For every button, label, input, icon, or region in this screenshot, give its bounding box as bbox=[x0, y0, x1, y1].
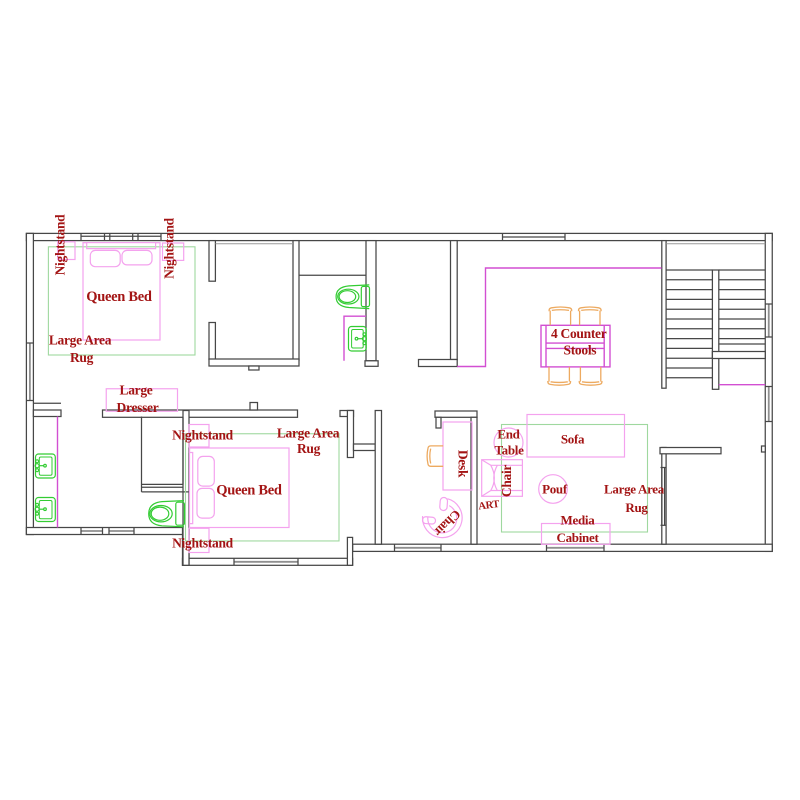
svg-text:Chair: Chair bbox=[431, 507, 464, 540]
svg-text:Stools: Stools bbox=[564, 342, 597, 357]
svg-text:Queen Bed: Queen Bed bbox=[216, 483, 282, 499]
svg-text:ART: ART bbox=[478, 499, 500, 513]
svg-text:Nightstand: Nightstand bbox=[172, 536, 234, 551]
svg-text:Cabinet: Cabinet bbox=[557, 530, 600, 545]
svg-text:4 Counter: 4 Counter bbox=[551, 326, 607, 341]
svg-text:Media: Media bbox=[561, 512, 596, 527]
svg-text:Nightstand: Nightstand bbox=[53, 214, 68, 276]
svg-text:Pouf: Pouf bbox=[542, 481, 568, 496]
svg-text:Rug: Rug bbox=[625, 500, 648, 515]
svg-text:Large Area: Large Area bbox=[277, 425, 340, 440]
svg-text:Rug: Rug bbox=[70, 350, 94, 365]
svg-text:Large Area: Large Area bbox=[49, 333, 112, 348]
svg-text:Desk: Desk bbox=[456, 450, 471, 478]
svg-text:Sofa: Sofa bbox=[561, 431, 585, 446]
svg-text:Nightstand: Nightstand bbox=[172, 427, 234, 442]
svg-text:Rug: Rug bbox=[297, 441, 321, 456]
svg-text:Dresser: Dresser bbox=[117, 400, 159, 415]
svg-text:Nightstand: Nightstand bbox=[162, 217, 177, 279]
svg-text:Chair: Chair bbox=[499, 465, 514, 498]
svg-text:End: End bbox=[497, 427, 520, 442]
svg-text:Large: Large bbox=[120, 382, 153, 397]
svg-text:Queen Bed: Queen Bed bbox=[86, 289, 152, 305]
svg-text:Large Area: Large Area bbox=[604, 481, 665, 496]
svg-text:Table: Table bbox=[494, 443, 524, 458]
